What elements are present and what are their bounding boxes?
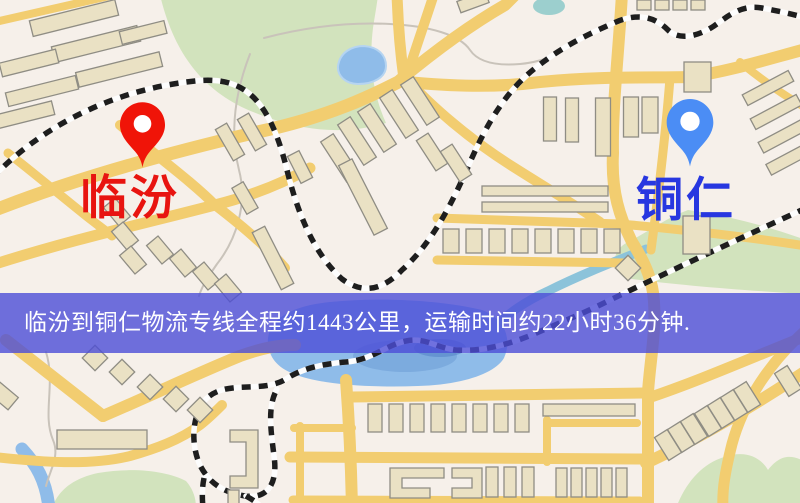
route-info-banner: 临汾到铜仁物流专线全程约1443公里，运输时间约22小时36分钟.: [0, 293, 800, 353]
map-background: [0, 0, 800, 503]
route-info-text: 临汾到铜仁物流专线全程约1443公里，运输时间约22小时36分钟.: [0, 293, 800, 353]
origin-pin-icon[interactable]: [119, 99, 166, 172]
teal-pond: [533, 0, 565, 15]
destination-city-label: 铜仁: [636, 176, 736, 223]
destination-pin-icon[interactable]: [664, 98, 716, 169]
map-canvas: 临汾 铜仁 临汾到铜仁物流专线全程约1443公里，运输时间约22小时36分钟.: [0, 0, 800, 503]
origin-city-label: 临汾: [80, 174, 180, 221]
